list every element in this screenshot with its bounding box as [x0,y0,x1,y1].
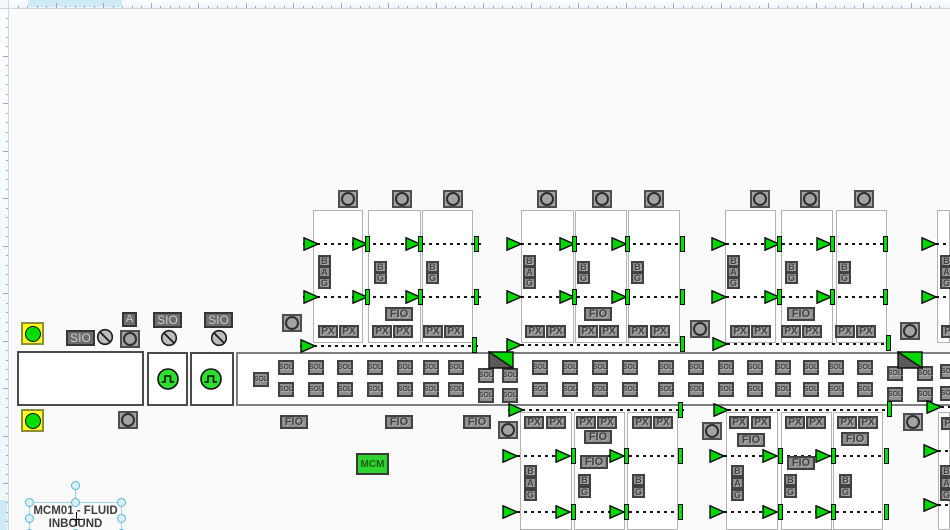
circle-icon [906,415,920,429]
instrument-circle-box[interactable] [690,320,710,338]
instrument-circle-box[interactable] [800,190,820,208]
px-box[interactable]: PX [751,325,771,338]
line-break-bar[interactable] [680,289,685,305]
sol-box[interactable]: SOL [478,388,494,403]
flow-dashed-line [507,344,685,346]
tag-letter-box[interactable]: B [632,474,645,486]
valve-glyph [506,237,522,251]
valve-triangle-icon[interactable] [923,498,939,512]
sol-box[interactable]: SOL [857,360,873,375]
circle-icon [753,192,767,206]
ruler-tick [892,6,893,9]
valve-triangle-icon[interactable] [762,449,778,463]
valve-glyph [709,449,725,463]
tag-letter-box[interactable]: G [727,277,740,289]
tag-letter-box[interactable]: G [524,489,537,501]
line-break-bar[interactable] [678,402,683,418]
tag-letter-box[interactable]: B [940,465,950,477]
ruler-tick [274,6,275,9]
ruler-tick [122,6,123,9]
line-break-bar[interactable] [474,236,479,252]
ruler-tick [84,6,85,9]
ruler-selection-highlight [0,500,7,530]
valve-glyph [300,339,316,353]
line-break-bar[interactable] [418,236,423,252]
valve-triangle-icon[interactable] [923,444,939,458]
sol-box[interactable]: SOL [658,360,674,375]
line-break-bar[interactable] [777,236,782,252]
valve-triangle-icon[interactable] [815,505,831,519]
crossed-circle-icon[interactable] [160,329,178,347]
rotation-handle[interactable] [71,481,80,490]
ruler-tick [6,350,9,351]
valve-glyph [506,290,522,304]
ruler-tick [6,217,9,218]
circle-icon [446,192,460,206]
ruler-tick [3,246,8,247]
ruler-tick [6,46,9,47]
instrument-circle-box[interactable] [702,422,722,440]
ruler-tick [141,6,142,9]
px-box[interactable]: PX [802,325,822,338]
ruler-tick [341,3,342,8]
sol-box[interactable]: SOL [887,387,903,402]
px-box[interactable]: PX [578,325,598,338]
instrument-circle-box[interactable] [644,190,664,208]
line-break-bar[interactable] [830,289,835,305]
ruler-tick [293,3,294,8]
valve-triangle-icon[interactable] [555,449,571,463]
ruler-tick [94,6,95,9]
tag-letter-box[interactable]: B [578,474,591,486]
valve-triangle-icon[interactable] [713,403,729,417]
ruler-tick [559,6,560,9]
px-box[interactable]: PX [339,325,359,338]
sol-box[interactable]: SOL [397,382,413,397]
px-box[interactable]: PX [372,325,392,338]
ruler-tick [6,189,9,190]
sol-box[interactable]: SOL [718,360,734,375]
px-box[interactable]: PX [806,416,826,429]
valve-glyph [709,505,725,519]
diverter-flag-icon[interactable] [897,351,923,369]
indicator-yellow-green[interactable] [21,322,44,345]
sol-box[interactable]: SOL [718,382,734,397]
sol-box[interactable]: SOL [308,360,324,375]
ruler-tick [6,521,9,522]
sol-box[interactable]: SOL [775,360,791,375]
line-break-bar[interactable] [680,236,685,252]
line-break-bar[interactable] [883,289,888,305]
px-box[interactable]: PX [653,416,673,429]
sol-box[interactable]: SOL [532,382,548,397]
instrument-circle-box[interactable] [854,190,874,208]
instrument-circle-box[interactable] [750,190,770,208]
sol-box[interactable]: SOL [448,382,464,397]
ruler-tick [3,103,8,104]
tag-letter-box[interactable]: G [839,486,852,498]
mcm-box[interactable]: MCM [356,453,389,475]
ruler-tick [6,141,9,142]
line-break-bar[interactable] [831,504,836,520]
fio-box[interactable]: FIO [737,433,765,447]
ruler-tick [151,3,152,8]
ruler-tick [6,255,9,256]
ruler-tick [103,3,104,8]
valve-triangle-icon[interactable] [609,449,625,463]
sol-box[interactable]: SOL [278,360,294,375]
sol-box[interactable]: SOL [747,382,763,397]
px-box[interactable]: PX [444,325,464,338]
px-box[interactable]: PX [835,325,855,338]
fio-box[interactable]: FIO [385,415,413,429]
sol-box[interactable]: SOL [423,382,439,397]
ruler-tick [6,360,9,361]
sol-box[interactable]: SOL [562,382,578,397]
instrument-circle-box[interactable] [392,190,412,208]
crossed-circle-glyph [160,329,178,347]
ruler-tick [6,265,9,266]
valve-triangle-icon[interactable] [506,290,522,304]
ruler-tick [6,113,9,114]
ruler-tick [455,6,456,9]
px-box[interactable]: PX [546,325,566,338]
ruler-tick [445,6,446,9]
tag-letter-box[interactable]: G [318,277,331,289]
line-break-bar[interactable] [571,504,576,520]
sol-box[interactable]: SOL [532,360,548,375]
ruler-tick [331,6,332,9]
ruler-tick [46,6,47,9]
px-box[interactable]: PX [730,325,750,338]
ruler-tick [369,6,370,9]
px-box[interactable]: PX [858,416,878,429]
ruler-tick [607,6,608,9]
sol-box[interactable]: SOL [828,360,844,375]
sol-box[interactable]: SOL [688,382,704,397]
flow-dashed-line [714,409,892,411]
valve-triangle-icon[interactable] [300,339,316,353]
selection-handle[interactable] [71,498,80,507]
line-break-bar[interactable] [365,236,370,252]
circle-icon [647,192,661,206]
sol-box[interactable]: SOL [775,382,791,397]
px-box[interactable]: PX [781,325,801,338]
instrument-circle-box[interactable] [900,322,920,340]
crossed-circle-icon[interactable] [96,328,114,346]
fio-box[interactable]: FIO [463,415,491,429]
sio-box[interactable]: SIO [204,312,233,328]
tag-letter-box[interactable]: G [784,486,797,498]
sol-box[interactable]: SOL [478,368,494,383]
px-box[interactable]: PX [650,325,670,338]
line-break-bar[interactable] [625,236,630,252]
fio-box[interactable]: FIO [787,456,815,470]
sol-box[interactable]: SOL [253,372,269,387]
pulse-indicator[interactable] [199,367,223,391]
fio-box[interactable]: FIO [841,432,869,446]
tag-letter-box[interactable]: G [731,489,744,501]
tag-letter-box[interactable]: G [838,272,851,284]
sol-box[interactable]: SOL [658,382,674,397]
instrument-circle-box[interactable] [537,190,557,208]
sol-box[interactable]: SOL [622,382,638,397]
line-break-bar[interactable] [572,236,577,252]
sol-box[interactable]: SOL [367,360,383,375]
px-box[interactable]: PX [599,325,619,338]
line-break-bar[interactable] [884,448,889,464]
tag-letter-box[interactable]: G [577,272,590,284]
px-box[interactable]: PX [546,416,566,429]
sol-box[interactable]: SOL [592,360,608,375]
valve-triangle-icon[interactable] [508,403,524,417]
px-box[interactable]: PX [576,416,596,429]
sol-box[interactable]: SOL [337,360,353,375]
tag-letter-box[interactable]: B [839,474,852,486]
tag-letter-box[interactable]: G [785,272,798,284]
valve-triangle-icon[interactable] [926,400,942,414]
pulse-indicator[interactable] [156,367,180,391]
fio-box[interactable]: FIO [584,430,612,444]
px-box[interactable]: PX [632,416,652,429]
valve-triangle-icon[interactable] [502,449,518,463]
valve-triangle-icon[interactable] [709,449,725,463]
sol-box[interactable]: SOL [367,382,383,397]
valve-triangle-icon[interactable] [609,505,625,519]
a-box[interactable]: A [122,312,137,327]
circle-icon [501,423,515,437]
flow-dashed-line [507,296,685,298]
valve-triangle-icon[interactable] [709,505,725,519]
tag-letter-box[interactable]: B [524,465,537,477]
circle-icon [121,413,135,427]
px-box[interactable]: PX [525,325,545,338]
line-break-bar[interactable] [778,504,783,520]
crossed-circle-glyph [210,329,228,347]
valve-triangle-icon[interactable] [815,449,831,463]
ruler-tick [740,6,741,9]
diverter-flag-icon[interactable] [488,351,514,369]
equipment-box[interactable] [17,351,144,406]
line-break-bar[interactable] [777,289,782,305]
tag-letter-box[interactable]: G [374,272,387,284]
valve-triangle-icon[interactable] [712,337,728,351]
sio-box[interactable]: SIO [66,330,95,346]
line-break-bar[interactable] [365,289,370,305]
diagram-canvas[interactable]: SOLSOLSOLSOLSOLSOLSOLSOLSOLSOLSOLSOLSOLS… [0,0,950,530]
valve-triangle-icon[interactable] [303,237,319,251]
sol-box[interactable]: SOL [940,364,950,379]
tag-letter-box[interactable]: A [940,477,950,489]
instrument-circle-box[interactable] [338,190,358,208]
valve-triangle-icon[interactable] [921,290,937,304]
valve-glyph [923,444,939,458]
ruler-tick [6,284,9,285]
ruler-tick [540,6,541,9]
sol-box[interactable]: SOL [688,360,704,375]
valve-triangle-icon[interactable] [506,237,522,251]
sol-box[interactable]: SOL [828,382,844,397]
selection-handle[interactable] [117,498,126,507]
ruler-tick [3,341,8,342]
ruler-tick [6,493,9,494]
flow-dashed-line [713,343,890,345]
tag-letter-box[interactable]: A [524,477,537,489]
ruler-vertical [0,8,9,530]
valve-triangle-icon[interactable] [303,290,319,304]
ruler-tick [37,6,38,9]
sol-box[interactable]: SOL [423,360,439,375]
tag-letter-box[interactable]: B [784,474,797,486]
tag-letter-box[interactable]: G [426,272,439,284]
line-break-bar[interactable] [678,504,683,520]
ruler-tick [236,6,237,9]
px-box[interactable]: PX [393,325,413,338]
line-break-bar[interactable] [472,337,477,353]
selection-handle[interactable] [25,498,34,507]
sol-box[interactable]: SOL [308,382,324,397]
ruler-tick [692,6,693,9]
sol-box[interactable]: SOL [448,360,464,375]
valve-triangle-icon[interactable] [555,505,571,519]
px-box[interactable]: PX [941,325,950,338]
valve-triangle-icon[interactable] [921,237,937,251]
px-box[interactable]: PX [729,416,749,429]
tag-letter-box[interactable]: A [731,477,744,489]
px-box[interactable]: PX [597,416,617,429]
ruler-tick [3,436,8,437]
ruler-tick [901,6,902,9]
px-box[interactable]: PX [837,416,857,429]
sol-box[interactable]: SOL [592,382,608,397]
sol-box[interactable]: SOL [502,388,518,403]
line-break-bar[interactable] [474,289,479,305]
indicator-yellow-green[interactable] [21,409,44,432]
selection-handle[interactable] [25,514,34,523]
line-break-bar[interactable] [778,448,783,464]
ruler-tick [569,6,570,9]
fio-box[interactable]: FIO [385,307,413,321]
ruler-tick [825,6,826,9]
sol-box[interactable]: SOL [747,360,763,375]
selection-handle[interactable] [117,514,126,523]
ruler-tick [512,6,513,9]
tag-letter-box[interactable]: G [578,486,591,498]
line-break-bar[interactable] [624,504,629,520]
valve-triangle-icon[interactable] [711,290,727,304]
instrument-circle-box[interactable] [282,314,302,332]
tag-letter-box[interactable]: G [940,489,950,501]
sol-box[interactable]: SOL [803,382,819,397]
px-box[interactable]: PX [423,325,443,338]
line-break-bar[interactable] [624,448,629,464]
sol-box[interactable]: SOL [397,360,413,375]
px-box[interactable]: PX [318,325,338,338]
line-break-bar[interactable] [625,289,630,305]
sol-box[interactable]: SOL [562,360,578,375]
ruler-tick [6,474,9,475]
instrument-circle-box[interactable] [443,190,463,208]
crossed-circle-glyph [96,328,114,346]
tag-letter-box[interactable]: G [632,486,645,498]
fio-box[interactable]: FIO [280,415,308,429]
crossed-circle-icon[interactable] [210,329,228,347]
circle-icon [857,192,871,206]
valve-glyph [713,403,729,417]
px-box[interactable]: PX [785,416,805,429]
instrument-circle-box[interactable] [118,411,138,429]
selected-text-label[interactable]: MCM01 - FLUID INBOUND [29,502,122,530]
sio-box[interactable]: SIO [153,312,182,328]
sol-box[interactable]: SOL [857,382,873,397]
tag-letter-box[interactable]: G [523,277,536,289]
valve-glyph [711,290,727,304]
ruler-tick [6,274,9,275]
sol-box[interactable]: SOL [940,386,950,401]
ruler-tick [6,445,9,446]
px-box[interactable]: PX [751,416,771,429]
ruler-tick [873,6,874,9]
valve-triangle-icon[interactable] [506,338,522,352]
valve-glyph [921,290,937,304]
line-break-bar[interactable] [831,448,836,464]
instrument-circle-box[interactable] [120,330,140,348]
fio-box[interactable]: FIO [584,307,612,321]
line-break-bar[interactable] [572,289,577,305]
ruler-tick [816,3,817,8]
line-break-bar[interactable] [830,236,835,252]
valve-triangle-icon[interactable] [762,505,778,519]
ruler-tick [759,6,760,9]
fio-box[interactable]: FIO [787,307,815,321]
instrument-circle-box[interactable] [592,190,612,208]
valve-triangle-icon[interactable] [502,505,518,519]
sol-box[interactable]: SOL [622,360,638,375]
line-break-bar[interactable] [418,289,423,305]
px-box[interactable]: PX [628,325,648,338]
ruler-tick [6,236,9,237]
fio-box[interactable]: FIO [580,455,608,469]
line-break-bar[interactable] [886,335,891,351]
ruler-tick [6,37,9,38]
ruler-tick [550,6,551,9]
px-box[interactable]: PX [856,325,876,338]
tag-letter-box[interactable]: B [731,465,744,477]
instrument-circle-box[interactable] [903,413,923,431]
valve-triangle-icon[interactable] [711,237,727,251]
line-break-bar[interactable] [680,336,685,352]
sol-box[interactable]: SOL [502,368,518,383]
sol-box[interactable]: SOL [803,360,819,375]
px-box[interactable]: PX [941,417,950,430]
line-break-bar[interactable] [571,448,576,464]
tag-letter-box[interactable]: G [940,277,950,289]
line-break-bar[interactable] [678,448,683,464]
sol-box[interactable]: SOL [337,382,353,397]
line-break-bar[interactable] [887,401,892,417]
ruler-tick [360,6,361,9]
green-circle-icon [25,413,41,429]
valve-glyph [303,290,319,304]
sol-box[interactable]: SOL [278,382,294,397]
line-break-bar[interactable] [884,504,889,520]
instrument-circle-box[interactable] [498,421,518,439]
ruler-tick [3,198,8,199]
line-break-bar[interactable] [883,236,888,252]
circle-icon [705,424,719,438]
px-box[interactable]: PX [524,416,544,429]
tag-letter-box[interactable]: G [631,272,644,284]
